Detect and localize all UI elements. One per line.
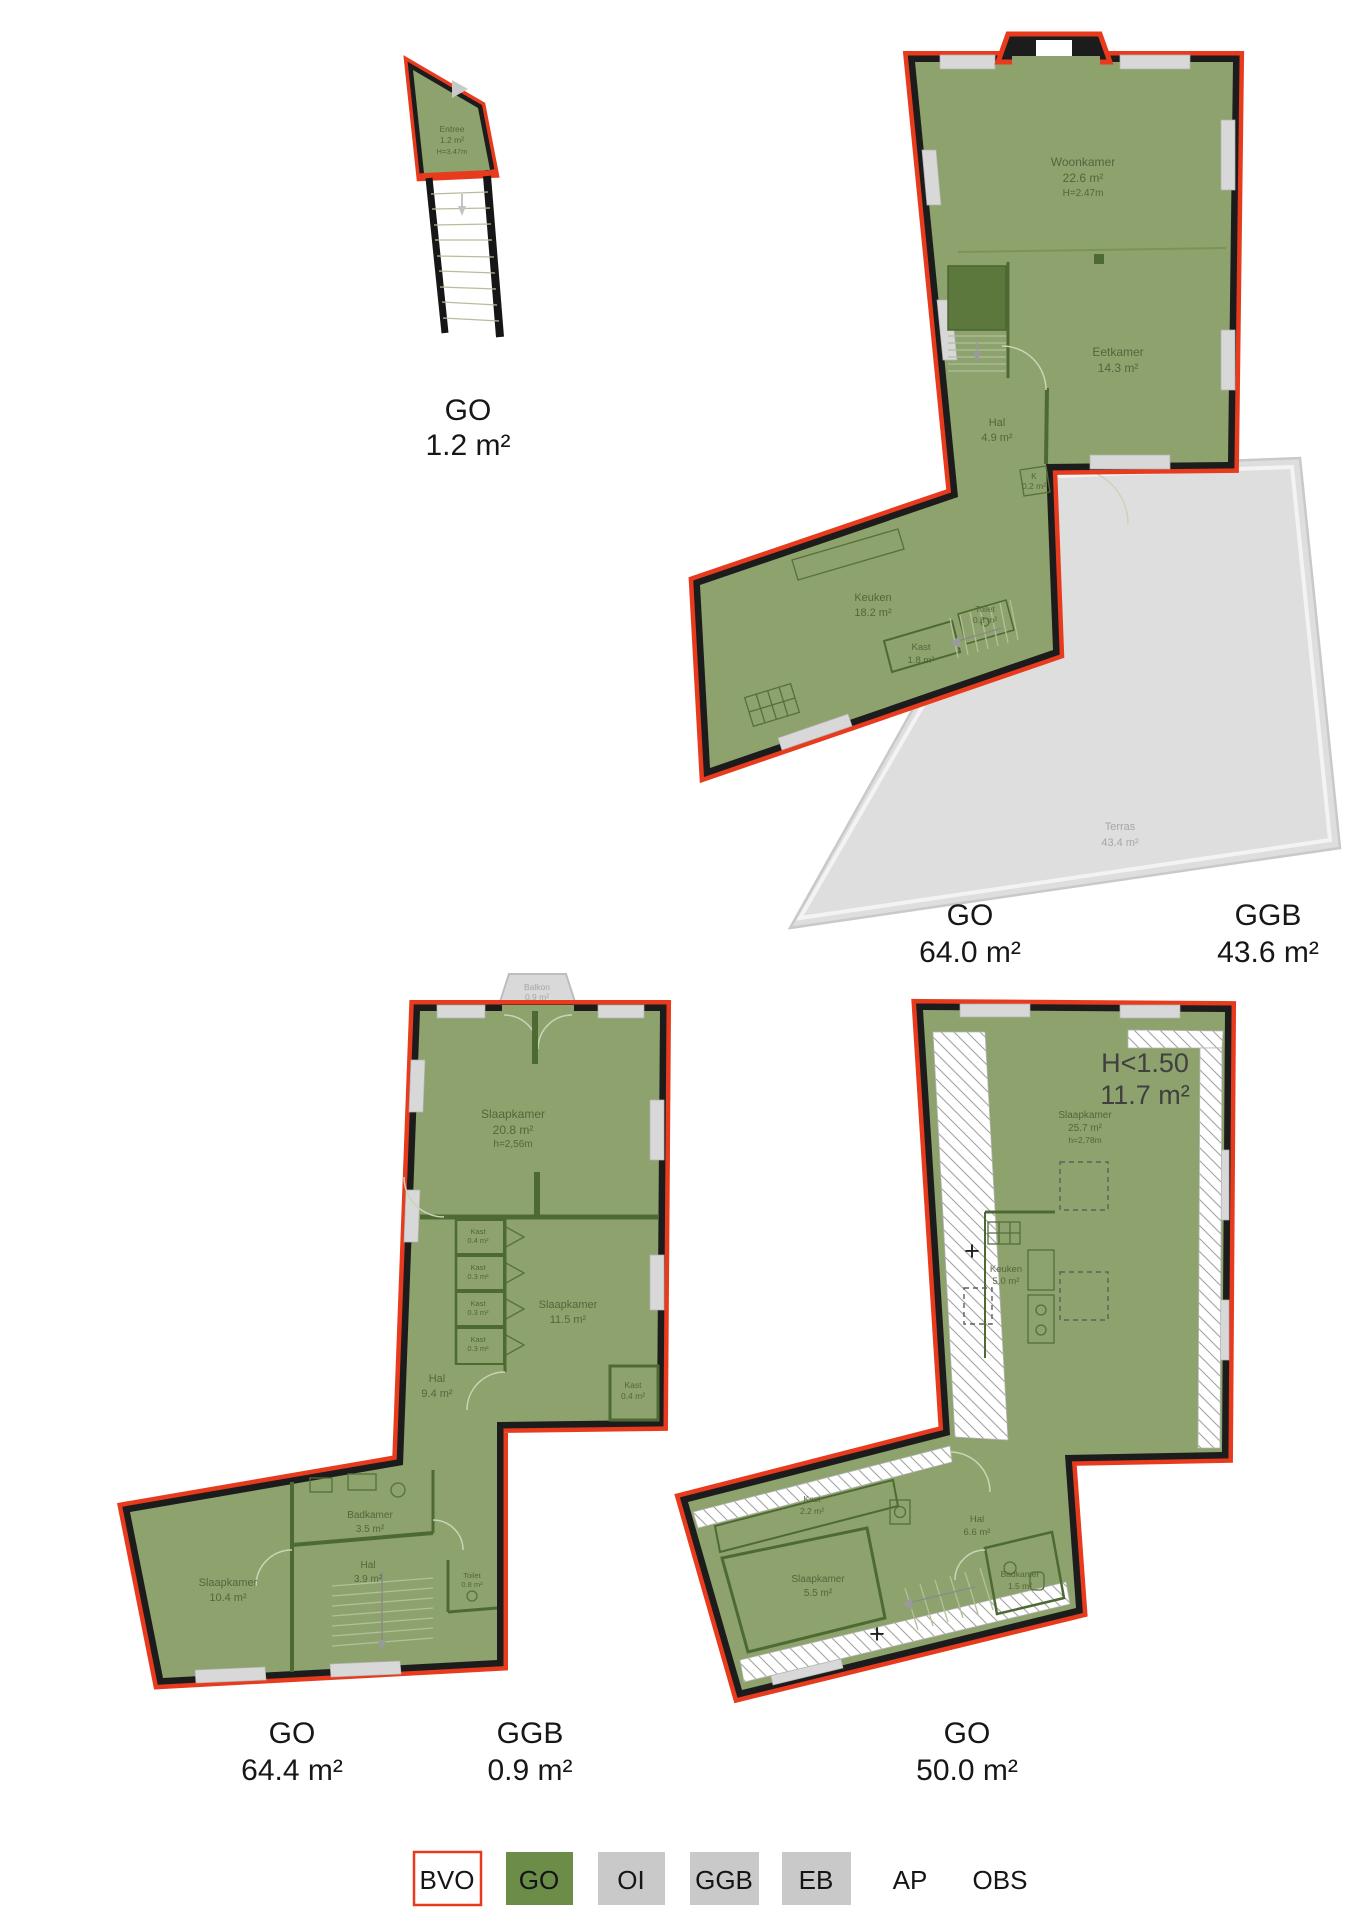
- dormer-opening: [1036, 40, 1072, 58]
- plan-second-ggb-area: 0.9 m²: [487, 1754, 572, 1787]
- plan-first-go-area: 64.0 m²: [919, 936, 1021, 969]
- room-label-badkamer-name: Badkamer: [347, 1510, 393, 1521]
- room-label-hal2-area: 3.9 m²: [354, 1574, 383, 1585]
- window: [404, 1190, 420, 1242]
- legend-label-go: GO: [519, 1865, 559, 1895]
- room-label-entree-height: H=3.47m: [437, 147, 468, 156]
- room-label-kast-area: 1.8 m²: [908, 655, 935, 666]
- room-label-entree-area: 1.2 m²: [440, 135, 464, 145]
- room-label-badkamer-area: 1.5 m²: [1008, 1581, 1032, 1591]
- room-label-kast2-name: Kast: [470, 1263, 486, 1272]
- window: [195, 1667, 266, 1683]
- room-label-kast5-name: Kast: [624, 1380, 642, 1390]
- room-label-slaapkamer3-area: 10.4 m²: [209, 1592, 247, 1604]
- room-label-hal-name: Hal: [970, 1514, 984, 1525]
- window: [940, 55, 995, 69]
- room-label-hal-area: 4.9 m²: [981, 432, 1013, 444]
- height-restriction-line2: 11.7 m²: [1100, 1080, 1190, 1110]
- floorplan-sheet: Entree 1.2 m² H=3.47m GO 1.2 m² Terras 4…: [0, 0, 1358, 1920]
- legend-label-obs: OBS: [973, 1865, 1028, 1895]
- room-label-kast1-name: Kast: [470, 1227, 486, 1236]
- room-label-terras-name: Terras: [1105, 821, 1136, 833]
- room-label-terras-area: 43.4 m²: [1101, 837, 1139, 849]
- room-label-kast2-area: 0.3 m²: [467, 1272, 489, 1281]
- window: [1090, 455, 1170, 469]
- plan-first-ggb-area: 43.6 m²: [1217, 936, 1319, 969]
- radiator-icon: [1094, 254, 1104, 264]
- room-label-badkamer-name: Badkamer: [1001, 1569, 1040, 1579]
- room-label-woonkamer-area: 22.6 m²: [1063, 171, 1104, 185]
- room-label-keuken-area: 5.0 m²: [993, 1276, 1020, 1287]
- room-label-slaapkamer1-area: 20.8 m²: [493, 1123, 534, 1137]
- interior-wall: [1046, 388, 1047, 464]
- room-label-balkon-name: Balkon: [524, 982, 550, 992]
- room-label-toilet-name: Toilet: [975, 604, 995, 614]
- room-label-toilet-name: Toilet: [463, 1571, 481, 1580]
- plan-entree-go-type: GO: [445, 394, 492, 427]
- floorplan-first-floor: Terras 43.4 m²: [700, 34, 1340, 969]
- plus-marker: +: [869, 1619, 885, 1649]
- window: [650, 1255, 664, 1310]
- room-label-kast5-area: 0.4 m²: [621, 1391, 645, 1401]
- plan-second-go-type: GO: [269, 1717, 316, 1750]
- room-label-eetkamer-name: Eetkamer: [1092, 345, 1143, 359]
- room-label-kast3-area: 0.3 m²: [467, 1308, 489, 1317]
- room-label-toilet-area: 0.8 m²: [461, 1580, 483, 1589]
- window: [650, 1100, 664, 1160]
- stairwell: [948, 266, 1006, 330]
- room-label-kast-name: Kast: [911, 642, 930, 653]
- legend-label-bvo: BVO: [420, 1865, 475, 1895]
- room-label-slaapkamer2-name: Slaapkamer: [791, 1574, 845, 1585]
- room-label-toilet-area: 0.8 m²: [973, 615, 997, 625]
- window: [1221, 330, 1235, 390]
- window: [960, 1004, 1030, 1017]
- room-label-keuken-name: Keuken: [854, 592, 891, 604]
- plan-entree-go-area: 1.2 m²: [425, 429, 510, 462]
- plan-second-ggb-type: GGB: [497, 1717, 564, 1750]
- room-label-k-name: K: [1031, 471, 1037, 481]
- plus-marker: +: [964, 1236, 980, 1266]
- stairs-entree: [429, 176, 500, 337]
- room-label-kast-name: Kast: [803, 1494, 821, 1504]
- dormer-floor: [1012, 56, 1100, 72]
- stairs-down-arrow-icon: [458, 206, 466, 216]
- plan-first-go-type: GO: [947, 899, 994, 932]
- window: [1120, 1005, 1180, 1018]
- room-label-hal-name: Hal: [429, 1373, 446, 1385]
- room-label-slaapkamer2-name: Slaapkamer: [539, 1299, 598, 1311]
- floorplan-entree: Entree 1.2 m² H=3.47m GO 1.2 m²: [413, 70, 511, 462]
- room-label-badkamer-area: 3.5 m²: [356, 1524, 385, 1535]
- room-label-entree-name: Entree: [439, 124, 464, 134]
- room-label-keuken-area: 18.2 m²: [854, 607, 892, 619]
- window: [1120, 55, 1190, 69]
- height-restriction-line1: H<1.50: [1101, 1048, 1189, 1078]
- legend-label-ggb: GGB: [695, 1865, 753, 1895]
- room-label-slaapkamer2-area: 5.5 m²: [804, 1588, 833, 1599]
- window: [409, 1060, 425, 1112]
- room-label-slaapkamer1-height: h=2,56m: [493, 1139, 532, 1150]
- legend-label-ap: AP: [893, 1865, 928, 1895]
- legend: BVO GO OI GGB EB AP OBS: [414, 1852, 1027, 1905]
- room-label-slaapkamer1-name: Slaapkamer: [481, 1107, 545, 1121]
- room-label-woonkamer-name: Woonkamer: [1051, 155, 1115, 169]
- plan-third-go-area: 50.0 m²: [916, 1754, 1018, 1787]
- room-label-eetkamer-area: 14.3 m²: [1098, 361, 1139, 375]
- legend-label-eb: EB: [799, 1865, 834, 1895]
- floorplan-second-floor: Balkon 0.9 m²: [130, 974, 664, 1787]
- room-label-hal-name: Hal: [989, 417, 1006, 429]
- room-label-slaapkamer1-name: Slaapkamer: [1058, 1110, 1112, 1121]
- plan-second-go-area: 64.4 m²: [241, 1754, 343, 1787]
- room-label-slaapkamer2-area: 11.5 m²: [550, 1314, 587, 1326]
- hatch-low-height-top: [1128, 1030, 1223, 1048]
- window: [330, 1661, 401, 1677]
- floorplan-third-floor: + + H<1.50 11.7 m² Slaapkamer 25.7 m² h=…: [688, 1004, 1229, 1787]
- room-label-hal-area: 9.4 m²: [421, 1388, 453, 1400]
- room-label-hal2-name: Hal: [360, 1560, 375, 1571]
- room-label-hal-area: 6.6 m²: [964, 1527, 991, 1538]
- window: [598, 1005, 644, 1018]
- room-label-kast4-area: 0.3 m²: [467, 1344, 489, 1353]
- room-label-keuken-name: Keuken: [990, 1264, 1022, 1275]
- plan-first-ggb-type: GGB: [1235, 899, 1302, 932]
- room-label-kast1-area: 0.4 m²: [467, 1236, 489, 1245]
- room-label-kast-area: 2.2 m²: [800, 1506, 824, 1516]
- window: [1221, 120, 1235, 190]
- plan-third-go-type: GO: [944, 1717, 991, 1750]
- room-label-slaapkamer1-height: h=2,78m: [1068, 1135, 1101, 1145]
- room-label-k-area: 0.2 m²: [1022, 481, 1046, 491]
- hatch-low-height-right: [1198, 1048, 1222, 1448]
- room-label-woonkamer-height: H=2.47m: [1063, 188, 1104, 199]
- room-label-kast4-name: Kast: [470, 1335, 486, 1344]
- legend-label-oi: OI: [617, 1865, 644, 1895]
- room-label-kast3-name: Kast: [470, 1299, 486, 1308]
- room-label-slaapkamer3-name: Slaapkamer: [199, 1577, 258, 1589]
- window: [437, 1005, 485, 1018]
- room-label-slaapkamer1-area: 25.7 m²: [1068, 1123, 1103, 1134]
